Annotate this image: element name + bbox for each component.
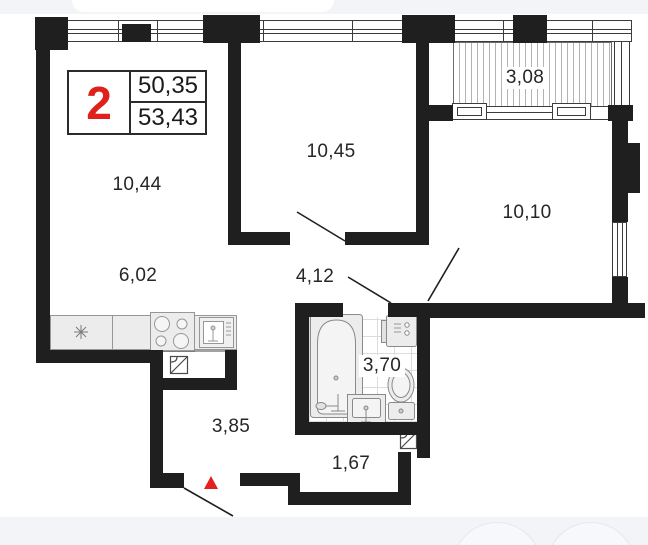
room-area-label: 1,67 [332,453,370,475]
total-area-value: 53,43 [131,103,205,134]
wall [150,473,184,488]
wall [241,232,290,245]
room-area-label: 3,08 [502,67,548,89]
wall [416,40,429,245]
room-area-label: 10,10 [502,202,551,224]
balcony-side-window [615,42,630,108]
door-room-10-10 [428,248,459,301]
wall [228,40,241,245]
kitchen-sink-icon [200,318,234,348]
wall-pier [35,17,68,50]
washing-machine-icon [382,316,417,347]
room-area-label: 4,12 [296,266,334,288]
wall [295,303,343,317]
door-room-10-45 [297,212,345,241]
wall-pier [628,143,640,193]
wall-pier [513,15,547,43]
fridge-icon [74,325,88,339]
room-area-label: 3,70 [359,355,405,377]
stove-icon [151,313,195,352]
room-area-label: 10,44 [112,174,161,196]
kitchen-counter [51,313,237,352]
wall [36,17,50,352]
wall [612,118,628,222]
room-area-label: 6,02 [119,265,157,287]
wall [295,303,309,435]
room-area-label: 10,45 [306,141,355,163]
wall [36,350,163,363]
wall [163,378,237,390]
apartment-info-box: 2 50,35 53,43 [67,70,207,135]
living-area-value: 50,35 [131,72,205,103]
wall [295,422,430,435]
balcony-room-window [439,104,612,120]
window-right-wall [613,223,627,277]
floor-plan: 2 50,35 53,43 10,44 10,45 10,10 3,08 6,0… [0,0,648,545]
wall [150,350,163,488]
wall-pier [417,105,453,121]
wall-pier [203,15,260,43]
door-entrance [184,488,233,516]
apartment-rooms-number: 2 [69,72,131,133]
wall [288,492,411,505]
wall-pier [402,15,455,43]
door-bathroom [348,277,391,303]
wall-pier [122,24,151,42]
entrance-marker-icon [204,476,218,489]
room-area-label: 3,85 [212,416,250,438]
wall [417,303,645,318]
